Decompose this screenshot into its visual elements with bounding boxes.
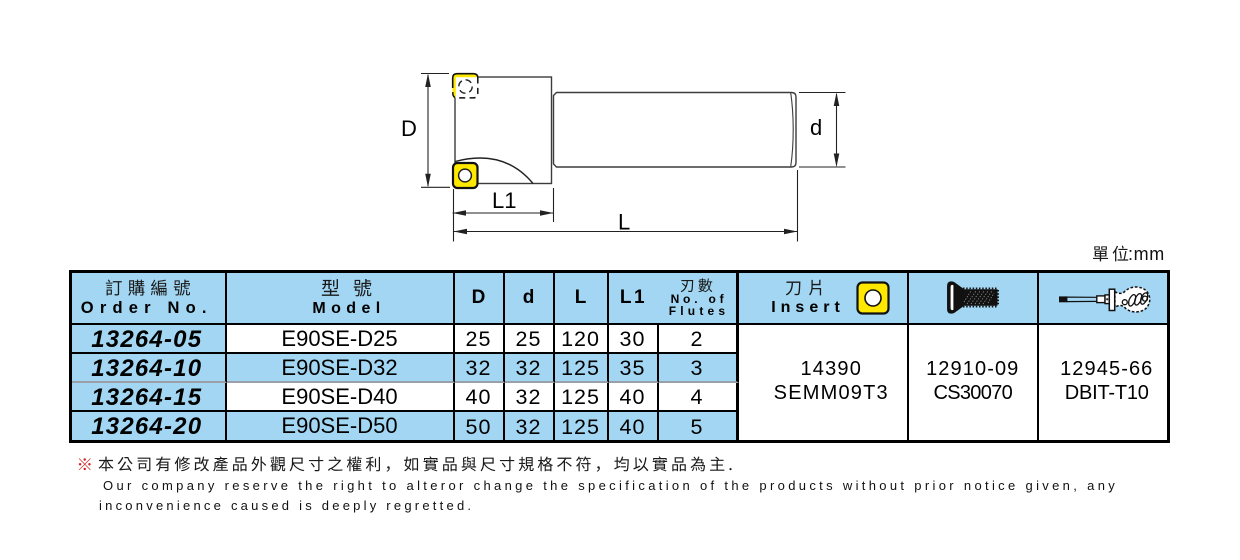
svg-text:d: d [810, 115, 822, 140]
svg-text:L: L [618, 210, 630, 235]
svg-text:L1: L1 [492, 188, 516, 213]
svg-text:D: D [401, 116, 417, 141]
